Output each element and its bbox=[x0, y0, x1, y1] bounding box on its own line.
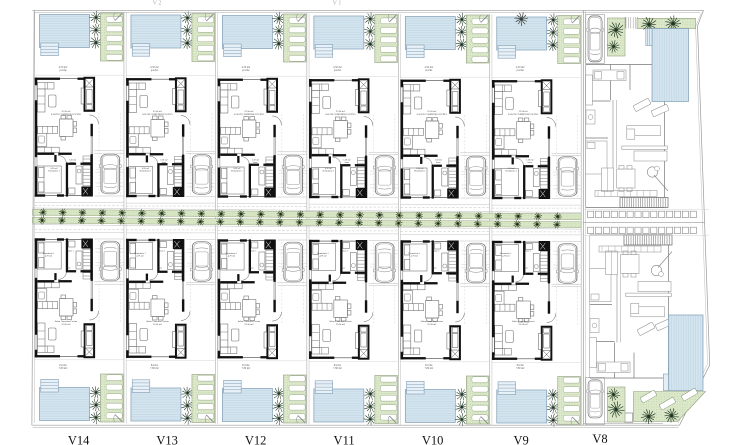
svg-text:25.50 m2: 25.50 m2 bbox=[153, 323, 163, 326]
svg-text:7.80 m2: 7.80 m2 bbox=[425, 367, 434, 370]
svg-text:Dormitorio 1: Dormitorio 1 bbox=[231, 171, 242, 173]
svg-text:porche: porche bbox=[517, 69, 525, 72]
svg-text:7.80 m2: 7.80 m2 bbox=[242, 367, 251, 370]
svg-text:SALON COMEDOR/COCINA: SALON COMEDOR/COCINA bbox=[325, 113, 356, 116]
svg-text:25.50 m2: 25.50 m2 bbox=[427, 323, 437, 326]
svg-text:25.50 m2: 25.50 m2 bbox=[336, 323, 346, 326]
svg-text:4.70 m2: 4.70 m2 bbox=[136, 256, 143, 258]
svg-text:V10: V10 bbox=[422, 434, 444, 445]
svg-text:V8: V8 bbox=[592, 432, 607, 445]
svg-text:Bano 1: Bano 1 bbox=[342, 251, 348, 253]
svg-text:Bano 1: Bano 1 bbox=[159, 251, 165, 253]
svg-text:porche: porche bbox=[425, 69, 433, 72]
svg-text:V14: V14 bbox=[68, 434, 90, 445]
svg-text:SALON COMEDOR/COCINA: SALON COMEDOR/COCINA bbox=[508, 113, 539, 116]
svg-text:V11: V11 bbox=[334, 434, 355, 445]
svg-text:7.80 m2: 7.80 m2 bbox=[150, 367, 159, 370]
svg-text:7.80 m2: 7.80 m2 bbox=[59, 367, 68, 370]
svg-text:25.50 m2: 25.50 m2 bbox=[519, 323, 529, 326]
svg-text:SALON COMEDOR/COCINA: SALON COMEDOR/COCINA bbox=[51, 113, 82, 116]
svg-text:Bano 1: Bano 1 bbox=[433, 251, 439, 253]
svg-text:SALON COMEDOR/COCINA: SALON COMEDOR/COCINA bbox=[234, 113, 265, 116]
svg-text:SALON COMEDOR/COCINA: SALON COMEDOR/COCINA bbox=[142, 113, 173, 116]
svg-text:4.70 m2: 4.70 m2 bbox=[319, 256, 326, 258]
svg-text:7.80 m2: 7.80 m2 bbox=[333, 367, 342, 370]
svg-text:V13: V13 bbox=[156, 434, 178, 445]
svg-text:Dormitorio 1: Dormitorio 1 bbox=[140, 171, 151, 173]
svg-text:porche: porche bbox=[242, 69, 250, 72]
svg-text:Bano 1: Bano 1 bbox=[67, 251, 73, 253]
svg-text:25.50 m2: 25.50 m2 bbox=[61, 323, 71, 326]
svg-text:Dormitorio 1: Dormitorio 1 bbox=[414, 171, 425, 173]
svg-text:4.70 m2: 4.70 m2 bbox=[411, 256, 418, 258]
svg-text:4.70 m2: 4.70 m2 bbox=[228, 256, 235, 258]
svg-text:SALON COMEDOR/COCINA: SALON COMEDOR/COCINA bbox=[417, 113, 448, 116]
svg-text:7.80 m2: 7.80 m2 bbox=[516, 367, 525, 370]
svg-text:V9: V9 bbox=[513, 434, 528, 445]
svg-text:porche: porche bbox=[59, 69, 67, 72]
svg-text:4.70 m2: 4.70 m2 bbox=[502, 256, 509, 258]
svg-text:porche: porche bbox=[334, 69, 342, 72]
svg-text:V 1: V 1 bbox=[333, 1, 342, 7]
svg-text:porche: porche bbox=[151, 69, 159, 72]
svg-text:V 2: V 2 bbox=[153, 1, 162, 7]
svg-text:25.50 m2: 25.50 m2 bbox=[244, 323, 254, 326]
svg-text:Bano 1: Bano 1 bbox=[525, 251, 531, 253]
svg-text:Dormitorio 1: Dormitorio 1 bbox=[323, 171, 334, 173]
svg-text:Dormitorio 1: Dormitorio 1 bbox=[48, 171, 59, 173]
svg-text:Bano 1: Bano 1 bbox=[250, 251, 256, 253]
svg-text:Dormitorio 1: Dormitorio 1 bbox=[505, 171, 516, 173]
svg-text:V12: V12 bbox=[245, 434, 267, 445]
svg-text:4.70 m2: 4.70 m2 bbox=[45, 256, 52, 258]
